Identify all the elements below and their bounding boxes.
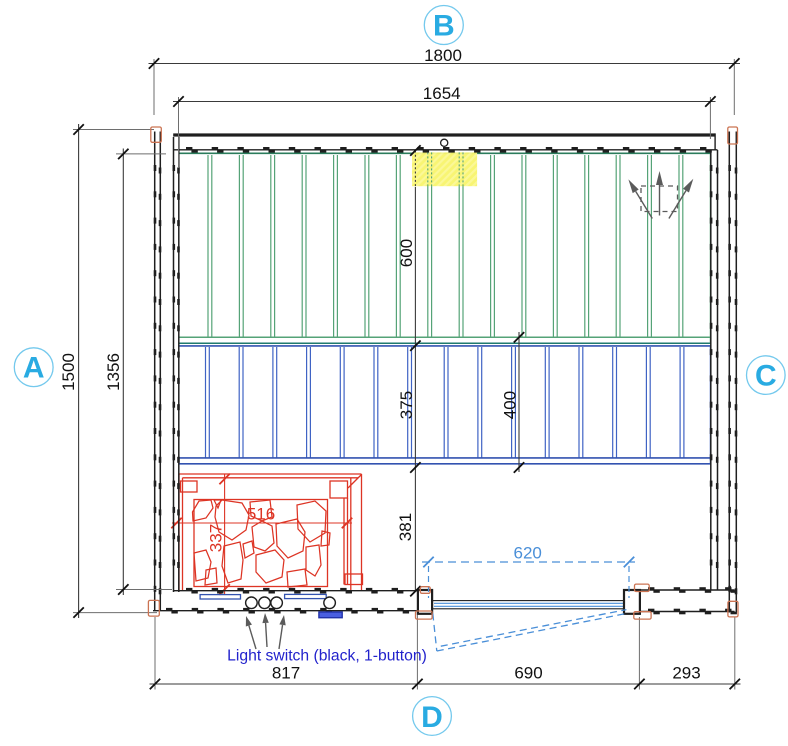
svg-text:400: 400	[501, 391, 520, 419]
svg-text:C: C	[755, 360, 777, 393]
svg-text:1356: 1356	[104, 353, 123, 391]
svg-text:Light switch (black, 1-button): Light switch (black, 1-button)	[227, 648, 427, 665]
svg-text:690: 690	[514, 664, 542, 683]
svg-text:337: 337	[207, 524, 226, 552]
svg-text:600: 600	[397, 239, 416, 267]
svg-text:293: 293	[672, 664, 700, 683]
svg-text:1800: 1800	[424, 46, 462, 65]
svg-text:D: D	[421, 701, 443, 734]
svg-text:1500: 1500	[59, 353, 78, 391]
svg-text:817: 817	[272, 664, 300, 683]
svg-text:620: 620	[514, 544, 542, 563]
svg-text:B: B	[433, 10, 455, 43]
svg-text:516: 516	[247, 505, 275, 524]
svg-text:1654: 1654	[423, 84, 461, 103]
svg-text:375: 375	[397, 391, 416, 419]
svg-text:381: 381	[396, 513, 415, 541]
svg-text:A: A	[23, 352, 45, 385]
